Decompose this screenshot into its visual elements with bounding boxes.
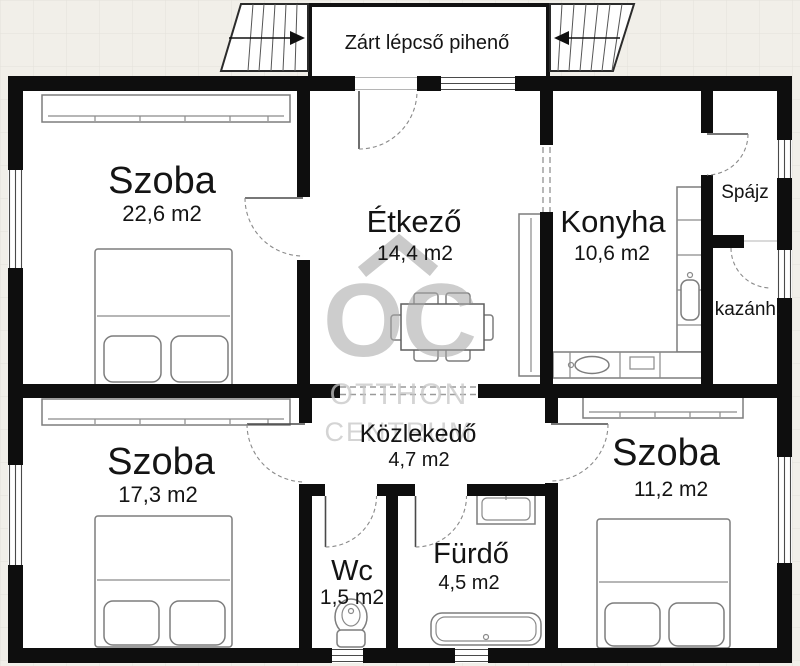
area-dining: 14,4 m2 [377,242,453,265]
kitchen-sink [681,280,699,320]
label-bedroom-top-left: Szoba [108,160,217,202]
cabinet [519,214,543,376]
label-bathroom: Fürdő [433,538,509,570]
area-wc: 1,5 m2 [320,586,384,609]
area-kitchen: 10,6 m2 [574,242,650,265]
floor-plan: OC OTTHON CENTRUM Zárt lépcső pihenő Szo… [0,0,800,666]
label-boiler: kazánh. [715,299,782,320]
area-bathroom: 4,5 m2 [438,572,499,594]
label-stair-landing: Zárt lépcső pihenő [345,32,510,54]
bathtub [431,613,541,645]
wardrobe [42,95,290,122]
washing-machine [477,494,535,524]
area-hallway: 4,7 m2 [388,449,449,471]
pillow [605,603,660,646]
watermark-initials: OC [323,263,475,379]
label-hallway: Közlekedő [360,420,477,448]
label-wc: Wc [331,555,373,587]
label-kitchen: Konyha [560,204,666,239]
pillow [669,603,724,646]
pillow [170,601,225,645]
pillow [104,336,161,382]
watermark-otthon-centrum: OC OTTHON CENTRUM [323,242,475,447]
label-dining: Étkező [367,204,462,239]
label-pantry: Spájz [721,182,769,203]
double-bed [95,516,232,647]
label-bedroom-bottom-left: Szoba [107,441,216,483]
kitchen-sink [575,357,609,374]
watermark-word-1: OTTHON [330,378,469,411]
pillow [171,336,228,382]
area-bedroom-top-left: 22,6 m2 [122,201,202,226]
area-bedroom-bottom-right: 11,2 m2 [634,478,708,501]
wardrobe [42,399,290,425]
label-bedroom-bottom-right: Szoba [612,432,721,474]
area-bedroom-bottom-left: 17,3 m2 [118,482,198,507]
floor-plan-page: OC OTTHON CENTRUM Zárt lépcső pihenő Szo… [0,0,800,666]
pillow [104,601,159,645]
double-bed [95,249,232,387]
double-bed [597,519,730,648]
